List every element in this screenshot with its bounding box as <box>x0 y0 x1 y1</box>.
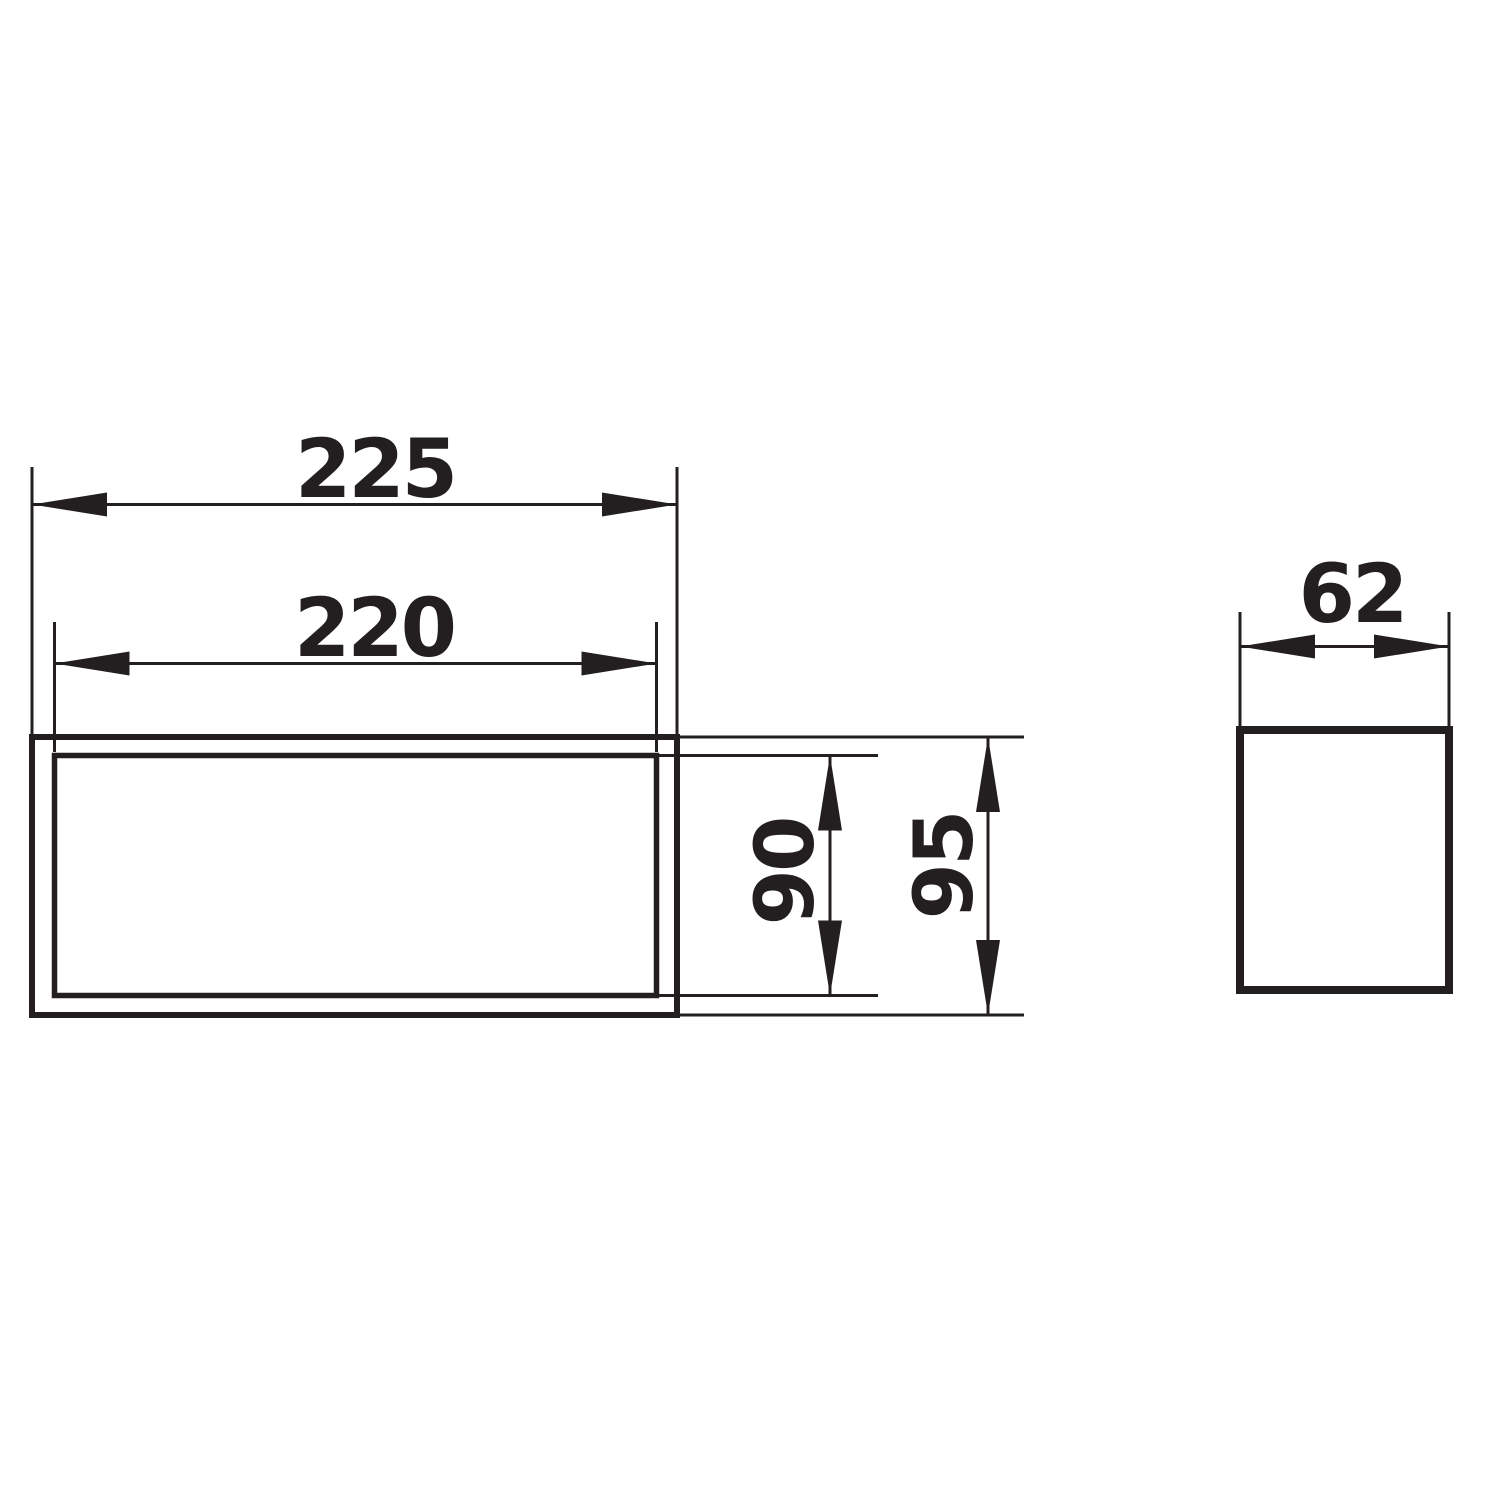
front-view-inner-rect <box>55 756 657 996</box>
front-view-outer-rect <box>32 737 677 1015</box>
dimension-value-inner-width: 220 <box>294 582 454 676</box>
depth-dimension: 62 <box>1240 548 1449 730</box>
dimension-value-outer-width: 225 <box>295 423 455 517</box>
dimension-value-outer-height: 95 <box>898 813 992 920</box>
technical-drawing-page: 225 220 90 95 <box>0 0 1500 1500</box>
arrowhead-down-icon <box>818 921 842 996</box>
outer-width-dimension: 225 <box>32 423 677 737</box>
arrowhead-left-icon <box>55 652 130 676</box>
side-view <box>1240 730 1449 990</box>
front-view <box>32 737 677 1015</box>
outer-height-dimension: 95 <box>680 737 1024 1015</box>
inner-height-dimension: 90 <box>657 756 879 996</box>
dimension-value-depth: 62 <box>1299 548 1406 642</box>
arrowhead-right-icon <box>602 493 677 517</box>
arrowhead-up-icon <box>976 737 1000 812</box>
arrowhead-right-icon <box>582 652 657 676</box>
technical-drawing-canvas: 225 220 90 95 <box>0 0 1500 1500</box>
arrowhead-left-icon <box>32 493 107 517</box>
side-view-rect <box>1240 730 1449 990</box>
arrowhead-down-icon <box>976 940 1000 1015</box>
dimension-value-inner-height: 90 <box>739 819 833 926</box>
inner-width-dimension: 220 <box>55 582 657 752</box>
